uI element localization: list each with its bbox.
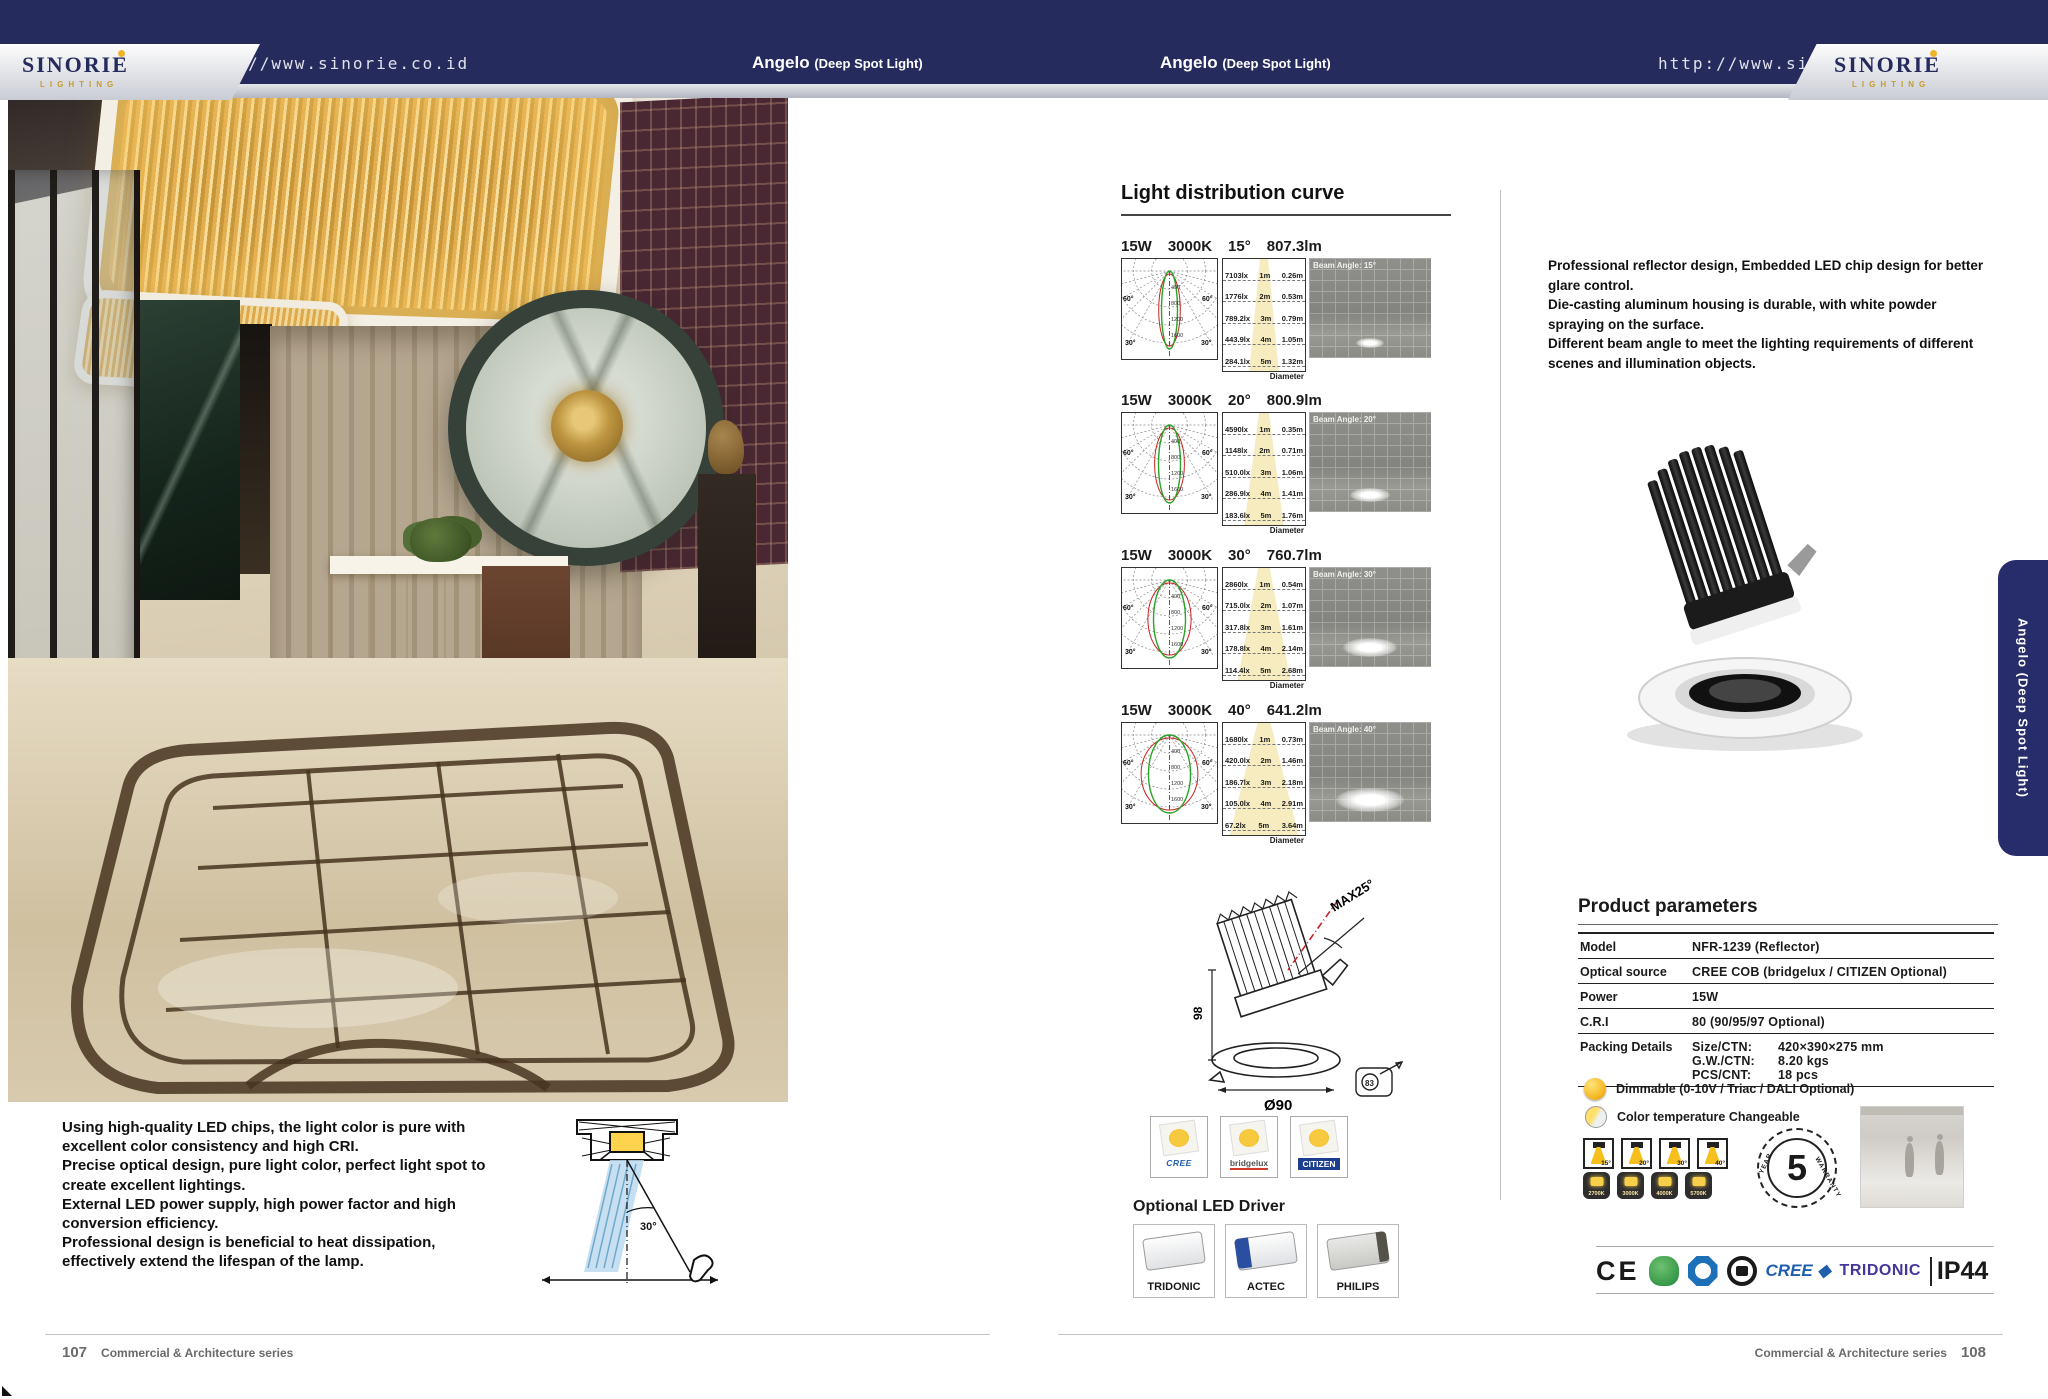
cct-label: Color temperature Changeable bbox=[1617, 1110, 1800, 1124]
beam-angle-option-icon: 40° bbox=[1697, 1138, 1728, 1169]
cone-table-row: 186.7lx3m2.18m bbox=[1223, 766, 1305, 788]
height-dim: 98 bbox=[1191, 1006, 1205, 1020]
header-divider bbox=[0, 84, 2048, 98]
driver-image bbox=[1142, 1231, 1206, 1271]
distance-value: 3m bbox=[1260, 623, 1271, 632]
led-chip-options: CREEbridgeluxCITIZEN bbox=[1150, 1116, 1348, 1178]
cct-kelvin-label: 2700K bbox=[1583, 1191, 1610, 1197]
spot-diameter-value: 2.18m bbox=[1282, 778, 1303, 787]
beam-angle-caption: Beam Angle: 15° bbox=[1313, 261, 1376, 270]
cct-option-icon: 3000K bbox=[1617, 1172, 1644, 1199]
lux-value: 1776lx bbox=[1225, 292, 1248, 301]
brand-logo-left: SINORIE LIGHTING bbox=[0, 44, 260, 100]
mannequin-silhouette bbox=[1935, 1141, 1944, 1175]
distance-value: 5m bbox=[1258, 821, 1269, 830]
svg-text:800: 800 bbox=[1171, 455, 1180, 461]
svg-text:60°: 60° bbox=[1123, 449, 1134, 457]
chip-option-bridgelux: bridgelux bbox=[1220, 1116, 1278, 1178]
distance-value: 2m bbox=[1260, 756, 1271, 765]
lux-value: 286.9lx bbox=[1225, 489, 1250, 498]
lux-value: 67.2lx bbox=[1225, 821, 1246, 830]
packing-line: Size/CTN:420×390×275 mm bbox=[1692, 1040, 1994, 1054]
svg-text:60°: 60° bbox=[1123, 759, 1134, 767]
svg-text:30°: 30° bbox=[1201, 339, 1212, 347]
svg-text:1600: 1600 bbox=[1171, 797, 1183, 803]
lux-value: 284.1lx bbox=[1225, 357, 1250, 366]
polar-diagram: 4008001200160060°60°30°30° bbox=[1121, 258, 1218, 360]
lumen-value: 641.2lm bbox=[1267, 702, 1322, 719]
quality-cert-icon bbox=[1727, 1256, 1757, 1286]
svg-text:60°: 60° bbox=[1202, 759, 1213, 767]
cone-table-row: 420.0lx2m1.46m bbox=[1223, 745, 1305, 767]
diameter-label: Diameter bbox=[1222, 681, 1304, 690]
page-number: 107 bbox=[62, 1344, 87, 1361]
max-tilt-label: MAX25° bbox=[1328, 878, 1377, 915]
svg-text:1600: 1600 bbox=[1171, 642, 1183, 648]
lobby-photo bbox=[8, 98, 788, 1102]
feature-item: External LED power supply, high power fa… bbox=[62, 1195, 492, 1233]
dimension-drawing: 98 Ø90 MAX25° 83 bbox=[1128, 878, 1418, 1123]
cct-row: Color temperature Changeable bbox=[1585, 1106, 1800, 1128]
parameter-value: CREE COB (bridgelux / CITIZEN Optional) bbox=[1692, 959, 1994, 983]
photo-moon-gate bbox=[448, 290, 724, 566]
distance-value: 5m bbox=[1260, 511, 1271, 520]
cob-chip-image bbox=[1159, 1120, 1199, 1157]
product-name: Angelo bbox=[1160, 53, 1218, 72]
spot-diameter-value: 3.64m bbox=[1282, 821, 1303, 830]
lux-value: 789.2lx bbox=[1225, 314, 1250, 323]
driver-section-title: Optional LED Driver bbox=[1133, 1198, 1285, 1216]
distance-value: 2m bbox=[1259, 292, 1270, 301]
parameters-underline bbox=[1578, 924, 1998, 925]
glare-angle-label: 30° bbox=[640, 1221, 657, 1233]
cone-table-row: 443.9lx4m1.05m bbox=[1223, 324, 1305, 346]
beam-angle-value: 40° bbox=[1228, 702, 1251, 719]
parameter-label: Optical source bbox=[1578, 959, 1692, 983]
lux-value: 317.8lx bbox=[1225, 623, 1250, 632]
lux-value: 1680lx bbox=[1225, 735, 1248, 744]
photo-floor-inlay bbox=[8, 658, 788, 1102]
parameter-label: C.R.I bbox=[1578, 1009, 1692, 1033]
lux-value: 178.8lx bbox=[1225, 644, 1250, 653]
spot-diameter-value: 1.41m bbox=[1282, 489, 1303, 498]
beam-room-photo: Beam Angle: 20° bbox=[1309, 412, 1431, 512]
photo-marble-panel bbox=[140, 300, 240, 600]
driver-option-tridonic: TRIDONIC bbox=[1133, 1224, 1215, 1298]
power-value: 15W bbox=[1121, 392, 1152, 409]
beam-spot bbox=[1356, 338, 1384, 348]
cone-diagram: 7103lx1m0.26m1776lx2m0.53m789.2lx3m0.79m… bbox=[1222, 258, 1306, 372]
cone-table-row: 284.1lx5m1.32m bbox=[1223, 345, 1305, 367]
spot-diameter-value: 1.32m bbox=[1282, 357, 1303, 366]
distance-value: 5m bbox=[1260, 357, 1271, 366]
brand-tagline: LIGHTING bbox=[1852, 80, 1930, 89]
cone-table-row: 7103lx1m0.26m bbox=[1223, 259, 1305, 281]
distribution-row-header: 15W3000K30°760.7lm bbox=[1121, 547, 1322, 564]
light-distribution-section: Light distribution curve 15W3000K15°807.… bbox=[1121, 182, 1506, 882]
cone-table-row: 1680lx1m0.73m bbox=[1223, 723, 1305, 745]
beam-angle-option-icon: 20° bbox=[1621, 1138, 1652, 1169]
footer-rule-left bbox=[45, 1334, 990, 1335]
parameter-row: Power15W bbox=[1578, 984, 1994, 1009]
feature-list: Using high-quality LED chips, the light … bbox=[62, 1118, 492, 1272]
driver-option-philips: PHILIPS bbox=[1317, 1224, 1399, 1298]
spot-diameter-value: 0.35m bbox=[1282, 425, 1303, 434]
ce-mark-icon: CE bbox=[1596, 1256, 1640, 1287]
cob-chip-glyph bbox=[1692, 1177, 1705, 1186]
cct-value: 3000K bbox=[1168, 547, 1212, 564]
lux-value: 186.7lx bbox=[1225, 778, 1250, 787]
spot-diameter-value: 0.73m bbox=[1282, 735, 1303, 744]
tridonic-logo: TRIDONIC bbox=[1840, 1262, 1921, 1280]
driver-brand-name: PHILIPS bbox=[1337, 1281, 1380, 1293]
product-type: (Deep Spot Light) bbox=[1222, 56, 1330, 71]
mannequin-silhouette bbox=[1905, 1143, 1914, 1177]
cct-option-icon: 2700K bbox=[1583, 1172, 1610, 1199]
svg-text:30°: 30° bbox=[1125, 803, 1136, 811]
svg-text:400: 400 bbox=[1171, 285, 1180, 291]
svg-text:800: 800 bbox=[1171, 765, 1180, 771]
brand-logo-right: SINORIE LIGHTING bbox=[1788, 44, 2048, 100]
photo-glass-wall bbox=[8, 170, 140, 730]
description-line: Die-casting aluminum housing is durable,… bbox=[1548, 295, 1988, 334]
cob-chip-image bbox=[1299, 1120, 1339, 1157]
distribution-row: 15W3000K30°760.7lm4008001200160060°60°30… bbox=[1121, 547, 1506, 697]
beam-degree-label: 40° bbox=[1715, 1160, 1725, 1167]
side-tab-label: Angelo (Deep Spot Light) bbox=[2016, 618, 2031, 798]
cob-chip-glyph bbox=[1590, 1177, 1603, 1186]
cone-diagram: 4590lx1m0.35m1148lx2m0.71m510.0lx3m1.06m… bbox=[1222, 412, 1306, 526]
product-name: Angelo bbox=[752, 53, 810, 72]
cob-chip-glyph bbox=[1624, 1177, 1637, 1186]
svg-text:30°: 30° bbox=[1125, 339, 1136, 347]
feature-item: Precise optical design, pure light color… bbox=[62, 1156, 492, 1194]
polar-diagram: 4008001200160060°60°30°30° bbox=[1121, 722, 1218, 824]
lux-value: 105.0lx bbox=[1225, 799, 1250, 808]
distance-value: 2m bbox=[1260, 601, 1271, 610]
cone-table-row: 789.2lx3m0.79m bbox=[1223, 302, 1305, 324]
beam-degree-label: 20° bbox=[1639, 1160, 1649, 1167]
spot-diameter-value: 0.53m bbox=[1282, 292, 1303, 301]
beam-spot bbox=[1343, 638, 1397, 657]
parameter-value: 80 (90/95/97 Optional) bbox=[1692, 1009, 1994, 1033]
product-photo bbox=[1570, 430, 1920, 780]
distribution-row-header: 15W3000K20°800.9lm bbox=[1121, 392, 1322, 409]
power-value: 15W bbox=[1121, 702, 1152, 719]
cone-table-row: 510.0lx3m1.06m bbox=[1223, 456, 1305, 478]
cct-value: 3000K bbox=[1168, 392, 1212, 409]
chip-option-citizen: CITIZEN bbox=[1290, 1116, 1348, 1178]
svg-text:800: 800 bbox=[1171, 610, 1180, 616]
footer-right: Commercial & Architecture series 108 bbox=[1755, 1344, 1986, 1361]
beam-angle-option-icon: 30° bbox=[1659, 1138, 1690, 1169]
cone-table-row: 183.6lx5m1.76m bbox=[1223, 499, 1305, 521]
cone-table-row: 105.0lx4m2.91m bbox=[1223, 788, 1305, 810]
dimmable-row: Dimmable (0-10V / Triac / DALI Optional) bbox=[1584, 1078, 1854, 1100]
cone-table-row: 1148lx2m0.71m bbox=[1223, 435, 1305, 457]
product-title-right: Angelo (Deep Spot Light) bbox=[1160, 53, 1331, 73]
cone-table-row: 317.8lx3m1.61m bbox=[1223, 611, 1305, 633]
section-underline bbox=[1121, 214, 1451, 216]
chip-brand-logo: bridgelux bbox=[1230, 1158, 1268, 1170]
distance-value: 2m bbox=[1259, 446, 1270, 455]
chip-brand-logo: CITIZEN bbox=[1298, 1158, 1339, 1170]
parameter-row: C.R.I80 (90/95/97 Optional) bbox=[1578, 1009, 1994, 1034]
brand-name: SINORIE bbox=[1834, 52, 1941, 78]
beam-room-photo: Beam Angle: 15° bbox=[1309, 258, 1431, 358]
lux-value: 715.0lx bbox=[1225, 601, 1250, 610]
diameter-label: Diameter bbox=[1222, 836, 1304, 845]
lux-value: 183.6lx bbox=[1225, 511, 1250, 520]
lumen-value: 760.7lm bbox=[1267, 547, 1322, 564]
distance-value: 1m bbox=[1259, 425, 1270, 434]
photo-plant bbox=[410, 518, 472, 562]
parameters-title: Product parameters bbox=[1578, 896, 1758, 918]
spot-diameter-value: 1.61m bbox=[1282, 623, 1303, 632]
distance-value: 3m bbox=[1260, 778, 1271, 787]
cct-option-icons: 2700K3000K4000K5700K bbox=[1583, 1172, 1712, 1199]
brand-tagline: LIGHTING bbox=[40, 80, 118, 89]
dimmable-icon bbox=[1584, 1078, 1606, 1100]
thumb-ceiling bbox=[1861, 1107, 1963, 1115]
cone-table-row: 715.0lx2m1.07m bbox=[1223, 590, 1305, 612]
packing-key: Size/CTN: bbox=[1692, 1040, 1778, 1054]
spot-diameter-value: 2.14m bbox=[1282, 644, 1303, 653]
polar-diagram: 4008001200160060°60°30°30° bbox=[1121, 412, 1218, 514]
distance-value: 1m bbox=[1259, 580, 1270, 589]
color-temperature-icon bbox=[1585, 1106, 1607, 1128]
product-description: Professional reflector design, Embedded … bbox=[1548, 256, 1988, 373]
spot-diameter-value: 2.91m bbox=[1282, 799, 1303, 808]
description-line: Different beam angle to meet the lightin… bbox=[1548, 334, 1988, 373]
svg-text:1200: 1200 bbox=[1171, 781, 1183, 787]
cct-kelvin-label: 4000K bbox=[1651, 1191, 1678, 1197]
svg-text:30°: 30° bbox=[1125, 493, 1136, 501]
svg-text:1600: 1600 bbox=[1171, 333, 1183, 339]
distance-value: 3m bbox=[1260, 314, 1271, 323]
safety-cert-icon bbox=[1688, 1256, 1718, 1286]
column-divider bbox=[1500, 190, 1501, 1200]
beam-angle-caption: Beam Angle: 40° bbox=[1313, 725, 1376, 734]
diameter-label: Diameter bbox=[1222, 372, 1304, 381]
spot-diameter-value: 1.46m bbox=[1282, 756, 1303, 765]
lux-value: 443.9lx bbox=[1225, 335, 1250, 344]
product-title-left: Angelo (Deep Spot Light) bbox=[752, 53, 923, 73]
cct-value: 3000K bbox=[1168, 238, 1212, 255]
parameter-label: Power bbox=[1578, 984, 1692, 1008]
power-value: 15W bbox=[1121, 238, 1152, 255]
svg-text:30°: 30° bbox=[1201, 493, 1212, 501]
driver-option-actec: ACTEC bbox=[1225, 1224, 1307, 1298]
lux-value: 4590lx bbox=[1225, 425, 1248, 434]
photo-gold-sculpture bbox=[551, 390, 623, 462]
cone-diagram: 1680lx1m0.73m420.0lx2m1.46m186.7lx3m2.18… bbox=[1222, 722, 1306, 836]
svg-text:1600: 1600 bbox=[1171, 487, 1183, 493]
svg-text:1200: 1200 bbox=[1171, 317, 1183, 323]
lux-value: 510.0lx bbox=[1225, 468, 1250, 477]
series-label: Commercial & Architecture series bbox=[1755, 1346, 1947, 1360]
description-line: Professional reflector design, Embedded … bbox=[1548, 256, 1988, 295]
beam-degree-label: 15° bbox=[1601, 1160, 1611, 1167]
lux-value: 420.0lx bbox=[1225, 756, 1250, 765]
cob-chip-image bbox=[1229, 1120, 1269, 1157]
warranty-stamp: 5 YEAR WARRANTY bbox=[1757, 1128, 1837, 1208]
parameter-row: ModelNFR-1239 (Reflector) bbox=[1578, 934, 1994, 959]
diameter-dim: Ø90 bbox=[1264, 1097, 1292, 1114]
distribution-row: 15W3000K20°800.9lm4008001200160060°60°30… bbox=[1121, 392, 1506, 542]
catalog-spread: SINORIE LIGHTING SINORIE LIGHTING http:/… bbox=[0, 0, 2048, 1399]
lumen-value: 800.9lm bbox=[1267, 392, 1322, 409]
driver-image bbox=[1234, 1231, 1298, 1271]
section-title: Light distribution curve bbox=[1121, 182, 1506, 205]
packing-value: 420×390×275 mm bbox=[1778, 1040, 1884, 1054]
driver-brand-name: ACTEC bbox=[1247, 1281, 1285, 1293]
cone-table-row: 178.8lx4m2.14m bbox=[1223, 633, 1305, 655]
dimmable-label: Dimmable (0-10V / Triac / DALI Optional) bbox=[1616, 1082, 1854, 1096]
distance-value: 3m bbox=[1260, 468, 1271, 477]
distribution-row-header: 15W3000K40°641.2lm bbox=[1121, 702, 1322, 719]
distance-value: 1m bbox=[1259, 271, 1270, 280]
beam-angle-icons: 15°20°30°40° bbox=[1583, 1138, 1728, 1169]
distance-value: 4m bbox=[1260, 335, 1271, 344]
svg-text:400: 400 bbox=[1171, 749, 1180, 755]
svg-text:1200: 1200 bbox=[1171, 626, 1183, 632]
spot-diameter-value: 1.76m bbox=[1282, 511, 1303, 520]
parameter-value: NFR-1239 (Reflector) bbox=[1692, 934, 1994, 958]
spot-diameter-value: 1.07m bbox=[1282, 601, 1303, 610]
cob-chip-glyph bbox=[1658, 1177, 1671, 1186]
certification-row: CE CREE ◆ TRIDONIC IP44 bbox=[1596, 1246, 1994, 1294]
spot-diameter-value: 1.05m bbox=[1282, 335, 1303, 344]
photo-corridor bbox=[240, 324, 272, 574]
spot-diameter-value: 0.26m bbox=[1282, 271, 1303, 280]
packing-value: 8.20 kgs bbox=[1778, 1054, 1829, 1068]
feature-item: Using high-quality LED chips, the light … bbox=[62, 1118, 492, 1156]
svg-text:60°: 60° bbox=[1123, 604, 1134, 612]
svg-text:400: 400 bbox=[1171, 594, 1180, 600]
diameter-label: Diameter bbox=[1222, 526, 1304, 535]
footer-left: 107 Commercial & Architecture series bbox=[62, 1344, 293, 1361]
spot-diameter-value: 2.68m bbox=[1282, 666, 1303, 675]
beam-spot bbox=[1336, 788, 1404, 812]
beam-angle-caption: Beam Angle: 30° bbox=[1313, 570, 1376, 579]
lux-value: 2860lx bbox=[1225, 580, 1248, 589]
cone-table-row: 2860lx1m0.54m bbox=[1223, 568, 1305, 590]
beam-room-photo: Beam Angle: 40° bbox=[1309, 722, 1431, 822]
ip-rating: IP44 bbox=[1930, 1257, 1988, 1286]
driver-brand-name: TRIDONIC bbox=[1147, 1281, 1200, 1293]
parameter-label: Packing Details bbox=[1578, 1034, 1692, 1058]
svg-text:60°: 60° bbox=[1202, 449, 1213, 457]
spot-diameter-value: 0.54m bbox=[1282, 580, 1303, 589]
svg-text:1200: 1200 bbox=[1171, 471, 1183, 477]
cone-diagram: 2860lx1m0.54m715.0lx2m1.07m317.8lx3m1.61… bbox=[1222, 567, 1306, 681]
svg-text:30°: 30° bbox=[1201, 803, 1212, 811]
distance-value: 4m bbox=[1260, 489, 1271, 498]
series-label: Commercial & Architecture series bbox=[101, 1346, 293, 1360]
driver-image bbox=[1326, 1231, 1390, 1271]
svg-text:30°: 30° bbox=[1125, 648, 1136, 656]
cone-table-row: 1776lx2m0.53m bbox=[1223, 281, 1305, 303]
distance-value: 4m bbox=[1260, 799, 1271, 808]
distribution-row-header: 15W3000K15°807.3lm bbox=[1121, 238, 1322, 255]
header-band bbox=[0, 0, 2048, 88]
distance-value: 1m bbox=[1259, 735, 1270, 744]
beam-angle-value: 30° bbox=[1228, 547, 1251, 564]
eco-cert-icon bbox=[1649, 1256, 1679, 1286]
application-photo bbox=[1860, 1106, 1964, 1208]
driver-options: TRIDONICACTECPHILIPS bbox=[1133, 1224, 1399, 1298]
cone-table-row: 114.4lx5m2.68m bbox=[1223, 654, 1305, 676]
distance-value: 4m bbox=[1260, 644, 1271, 653]
cone-table-row: 67.2lx5m3.64m bbox=[1223, 809, 1305, 831]
cct-option-icon: 5700K bbox=[1685, 1172, 1712, 1199]
distribution-row: 15W3000K15°807.3lm4008001200160060°60°30… bbox=[1121, 238, 1506, 388]
anti-glare-diagram: 30° bbox=[522, 1112, 732, 1312]
svg-text:60°: 60° bbox=[1202, 295, 1213, 303]
svg-text:400: 400 bbox=[1171, 439, 1180, 445]
page-number: 108 bbox=[1961, 1344, 1986, 1361]
product-type: (Deep Spot Light) bbox=[814, 56, 922, 71]
packing-key: G.W./CTN: bbox=[1692, 1054, 1778, 1068]
svg-text:60°: 60° bbox=[1123, 295, 1134, 303]
chip-brand-logo: CREE bbox=[1166, 1158, 1192, 1168]
spot-diameter-value: 0.71m bbox=[1282, 446, 1303, 455]
parameter-value: 15W bbox=[1692, 984, 1994, 1008]
lux-value: 1148lx bbox=[1225, 446, 1248, 455]
cree-logo: CREE ◆ bbox=[1766, 1261, 1831, 1281]
parameters-table: ModelNFR-1239 (Reflector)Optical sourceC… bbox=[1578, 932, 1994, 1087]
svg-text:60°: 60° bbox=[1202, 604, 1213, 612]
beam-angle-caption: Beam Angle: 20° bbox=[1313, 415, 1376, 424]
cct-option-icon: 4000K bbox=[1651, 1172, 1678, 1199]
cone-table-row: 286.9lx4m1.41m bbox=[1223, 478, 1305, 500]
parameter-label: Model bbox=[1578, 934, 1692, 958]
lumen-value: 807.3lm bbox=[1267, 238, 1322, 255]
beam-degree-label: 30° bbox=[1677, 1160, 1687, 1167]
spot-diameter-value: 0.79m bbox=[1282, 314, 1303, 323]
beam-angle-option-icon: 15° bbox=[1583, 1138, 1614, 1169]
cct-kelvin-label: 5700K bbox=[1685, 1191, 1712, 1197]
cct-kelvin-label: 3000K bbox=[1617, 1191, 1644, 1197]
warranty-years: 5 bbox=[1787, 1147, 1807, 1189]
power-value: 15W bbox=[1121, 547, 1152, 564]
svg-text:800: 800 bbox=[1171, 301, 1180, 307]
distribution-row: 15W3000K40°641.2lm4008001200160060°60°30… bbox=[1121, 702, 1506, 852]
cone-table-row: 4590lx1m0.35m bbox=[1223, 413, 1305, 435]
cct-value: 3000K bbox=[1168, 702, 1212, 719]
polar-diagram: 4008001200160060°60°30°30° bbox=[1121, 567, 1218, 669]
corner-mark bbox=[2, 1386, 12, 1396]
brand-name: SINORIE bbox=[22, 52, 129, 78]
spot-diameter-value: 1.06m bbox=[1282, 468, 1303, 477]
distance-value: 5m bbox=[1260, 666, 1271, 675]
lux-value: 7103lx bbox=[1225, 271, 1248, 280]
lux-value: 114.4lx bbox=[1225, 666, 1250, 675]
beam-room-photo: Beam Angle: 30° bbox=[1309, 567, 1431, 667]
parameter-row: Optical sourceCREE COB (bridgelux / CITI… bbox=[1578, 959, 1994, 984]
feature-item: Professional design is beneficial to hea… bbox=[62, 1233, 492, 1271]
cutout-dim: 83 bbox=[1365, 1079, 1374, 1088]
svg-text:30°: 30° bbox=[1201, 648, 1212, 656]
beam-angle-value: 15° bbox=[1228, 238, 1251, 255]
chip-option-cree: CREE bbox=[1150, 1116, 1208, 1178]
beam-spot bbox=[1350, 488, 1390, 502]
beam-angle-value: 20° bbox=[1228, 392, 1251, 409]
side-tab-angelo[interactable]: Angelo (Deep Spot Light) bbox=[1998, 560, 2048, 856]
packing-line: G.W./CTN:8.20 kgs bbox=[1692, 1054, 1994, 1068]
footer-rule-right bbox=[1058, 1334, 2003, 1335]
